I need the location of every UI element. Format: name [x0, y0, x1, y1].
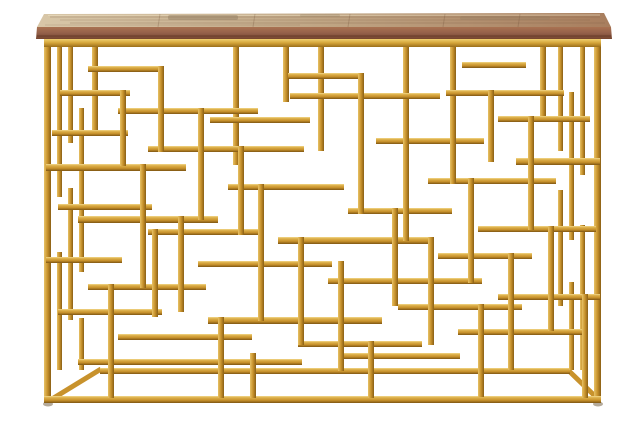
gold-bar	[558, 190, 563, 306]
gold-bar	[428, 178, 556, 184]
gold-bar	[328, 278, 482, 284]
console-table-illustration	[0, 0, 640, 427]
gold-bar	[238, 146, 244, 235]
gold-bar	[288, 73, 358, 79]
gold-bar	[57, 47, 62, 197]
gold-bar	[228, 184, 344, 190]
wood-top-front-edge	[36, 27, 612, 39]
gold-bar	[88, 66, 160, 72]
gold-bar	[118, 334, 252, 340]
gold-bar	[60, 90, 130, 96]
gold-top-rail	[44, 39, 601, 47]
gold-bar	[468, 178, 474, 283]
gold-bar	[298, 341, 422, 347]
gold-bar	[358, 73, 364, 214]
gold-bar	[58, 204, 152, 210]
gold-bar	[108, 284, 114, 398]
gold-bar	[208, 317, 382, 324]
gold-bar	[450, 113, 456, 184]
wood-tonal-patch	[300, 14, 340, 17]
gold-bar	[218, 317, 224, 398]
gold-bar	[580, 47, 585, 175]
gold-bar	[44, 47, 51, 403]
gold-bar	[398, 304, 522, 310]
gold-bar	[100, 368, 570, 374]
gold-bar	[403, 125, 409, 241]
gold-bar	[368, 341, 374, 398]
wood-tonal-patch	[168, 15, 238, 20]
gold-bar	[198, 108, 204, 220]
gold-bar	[152, 229, 158, 317]
gold-bar	[458, 329, 582, 335]
gold-bar	[450, 47, 456, 113]
gold-bar	[540, 47, 546, 119]
gold-bar	[148, 146, 304, 152]
gold-bar	[338, 261, 344, 371]
gold-bar	[403, 47, 409, 125]
gold-bar	[178, 216, 184, 312]
gold-bar	[478, 304, 484, 397]
product-photo	[0, 0, 640, 427]
gold-bar	[594, 47, 601, 403]
perspective-diagonal-bar	[52, 369, 101, 399]
gold-bar	[392, 208, 398, 306]
gold-bar	[478, 226, 596, 232]
gold-bar	[46, 164, 186, 171]
gold-bar	[88, 284, 206, 290]
gold-bar	[118, 108, 258, 114]
gold-bar	[258, 184, 264, 321]
wood-tonal-patch	[460, 16, 550, 20]
gold-bar	[158, 66, 164, 152]
gold-bar	[528, 116, 534, 230]
gold-bar	[148, 229, 264, 235]
gold-bar	[52, 130, 128, 136]
gold-bar	[340, 353, 460, 359]
gold-bar	[488, 90, 494, 162]
gold-bar	[120, 90, 126, 166]
gold-bar	[582, 294, 588, 398]
gold-bar	[438, 253, 532, 259]
gold-bar	[46, 257, 122, 263]
gold-bar	[140, 164, 146, 288]
gold-bar	[508, 253, 514, 370]
gold-bar	[376, 138, 484, 144]
gold-bar	[298, 237, 304, 345]
gold-bar	[250, 353, 256, 398]
gold-bar	[78, 216, 218, 223]
gold-bar	[428, 237, 434, 345]
gold-bar	[569, 92, 574, 240]
gold-bar	[558, 47, 563, 151]
gold-bar	[210, 117, 310, 123]
gold-bar	[548, 226, 554, 331]
gold-bar	[198, 261, 332, 267]
gold-bar	[446, 90, 564, 96]
gold-bar	[44, 396, 601, 403]
gold-bar	[498, 116, 590, 122]
gold-bar	[462, 62, 526, 68]
gold-bar	[290, 93, 440, 99]
